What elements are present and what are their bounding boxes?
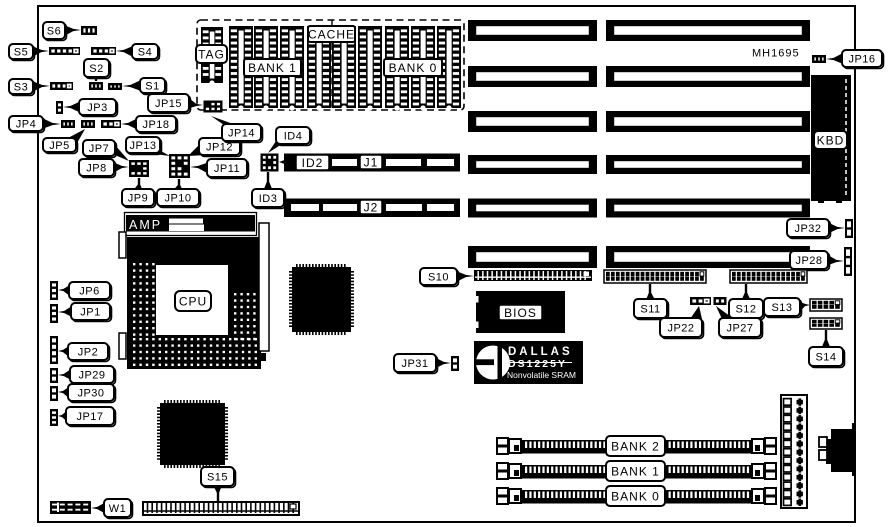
svg-text:ID2: ID2 [302,156,324,170]
svg-text:S5: S5 [14,46,28,58]
svg-text:S4: S4 [138,46,152,58]
svg-text:CACHE: CACHE [308,27,355,41]
svg-text:JP5: JP5 [49,140,69,152]
svg-text:BIOS: BIOS [504,306,537,320]
svg-text:JP6: JP6 [79,285,99,297]
svg-text:JP27: JP27 [726,322,753,334]
svg-text:S10: S10 [428,271,449,283]
svg-text:DALLAS: DALLAS [508,346,573,358]
svg-text:AMP: AMP [129,218,162,232]
svg-text:JP14: JP14 [228,127,255,139]
svg-text:Nonvolatile SRAM: Nonvolatile SRAM [507,370,576,380]
svg-text:S3: S3 [14,81,28,93]
svg-text:DS1225Y: DS1225Y [508,358,567,370]
svg-text:JP29: JP29 [78,369,105,381]
svg-text:J1: J1 [364,155,379,169]
svg-text:JP11: JP11 [214,163,240,175]
svg-text:JP18: JP18 [142,119,169,131]
svg-text:BANK 2: BANK 2 [611,439,660,453]
svg-text:JP31: JP31 [401,358,428,370]
svg-text:BANK 0: BANK 0 [611,489,660,503]
svg-text:S1: S1 [145,80,159,92]
svg-text:ID3: ID3 [259,193,278,205]
svg-text:BANK 1: BANK 1 [611,464,660,478]
svg-text:MH1695: MH1695 [752,48,800,60]
svg-text:BANK 1: BANK 1 [248,61,297,75]
svg-text:JP3: JP3 [87,102,107,114]
svg-text:JP16: JP16 [848,53,875,65]
svg-text:JP4: JP4 [16,118,36,130]
svg-text:J2: J2 [364,200,379,214]
svg-text:JP17: JP17 [76,411,103,423]
svg-text:JP8: JP8 [86,162,106,174]
svg-text:JP28: JP28 [795,255,822,267]
svg-text:S6: S6 [47,25,61,37]
svg-text:JP7: JP7 [89,143,109,155]
svg-text:JP1: JP1 [80,306,100,318]
svg-text:S15: S15 [207,471,228,483]
svg-text:JP10: JP10 [164,192,191,204]
svg-text:TAG: TAG [198,47,225,61]
svg-text:JP2: JP2 [78,346,98,358]
svg-text:ID4: ID4 [284,130,303,142]
svg-text:BANK 0: BANK 0 [389,61,438,75]
svg-text:KBD: KBD [817,133,845,147]
svg-text:S11: S11 [640,303,660,315]
svg-text:JP30: JP30 [77,387,104,399]
svg-text:S12: S12 [735,303,756,315]
svg-text:JP22: JP22 [667,322,694,334]
svg-text:S14: S14 [815,351,836,363]
svg-text:S13: S13 [771,302,792,314]
svg-text:JP9: JP9 [128,192,148,204]
svg-text:JP32: JP32 [794,223,821,235]
svg-text:JP15: JP15 [155,98,182,110]
svg-text:S2: S2 [89,63,103,75]
svg-text:JP13: JP13 [129,140,156,152]
svg-text:CPU: CPU [179,294,207,308]
svg-text:W1: W1 [109,503,127,515]
